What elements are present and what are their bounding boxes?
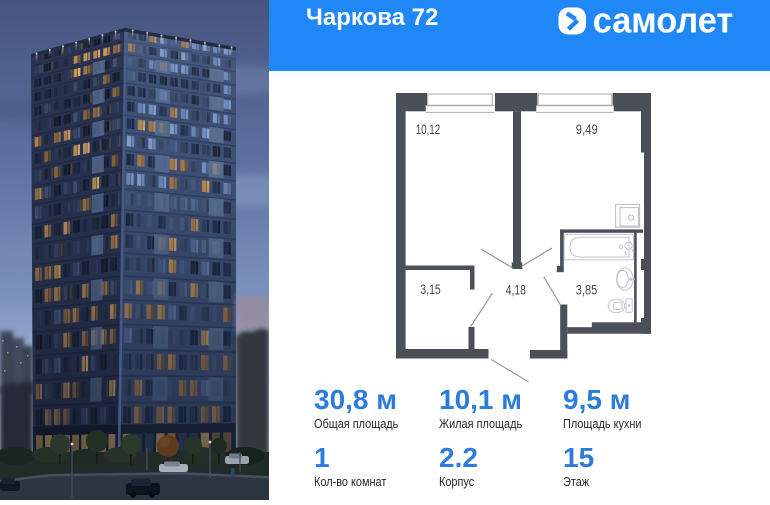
svg-text:3,85: 3,85 [576, 283, 598, 298]
svg-text:3,15: 3,15 [420, 282, 441, 297]
svg-text:самолет: самолет [593, 0, 734, 41]
svg-text:9,49: 9,49 [576, 122, 598, 137]
svg-text:4,18: 4,18 [506, 283, 526, 298]
svg-text:10,12: 10,12 [416, 122, 441, 137]
